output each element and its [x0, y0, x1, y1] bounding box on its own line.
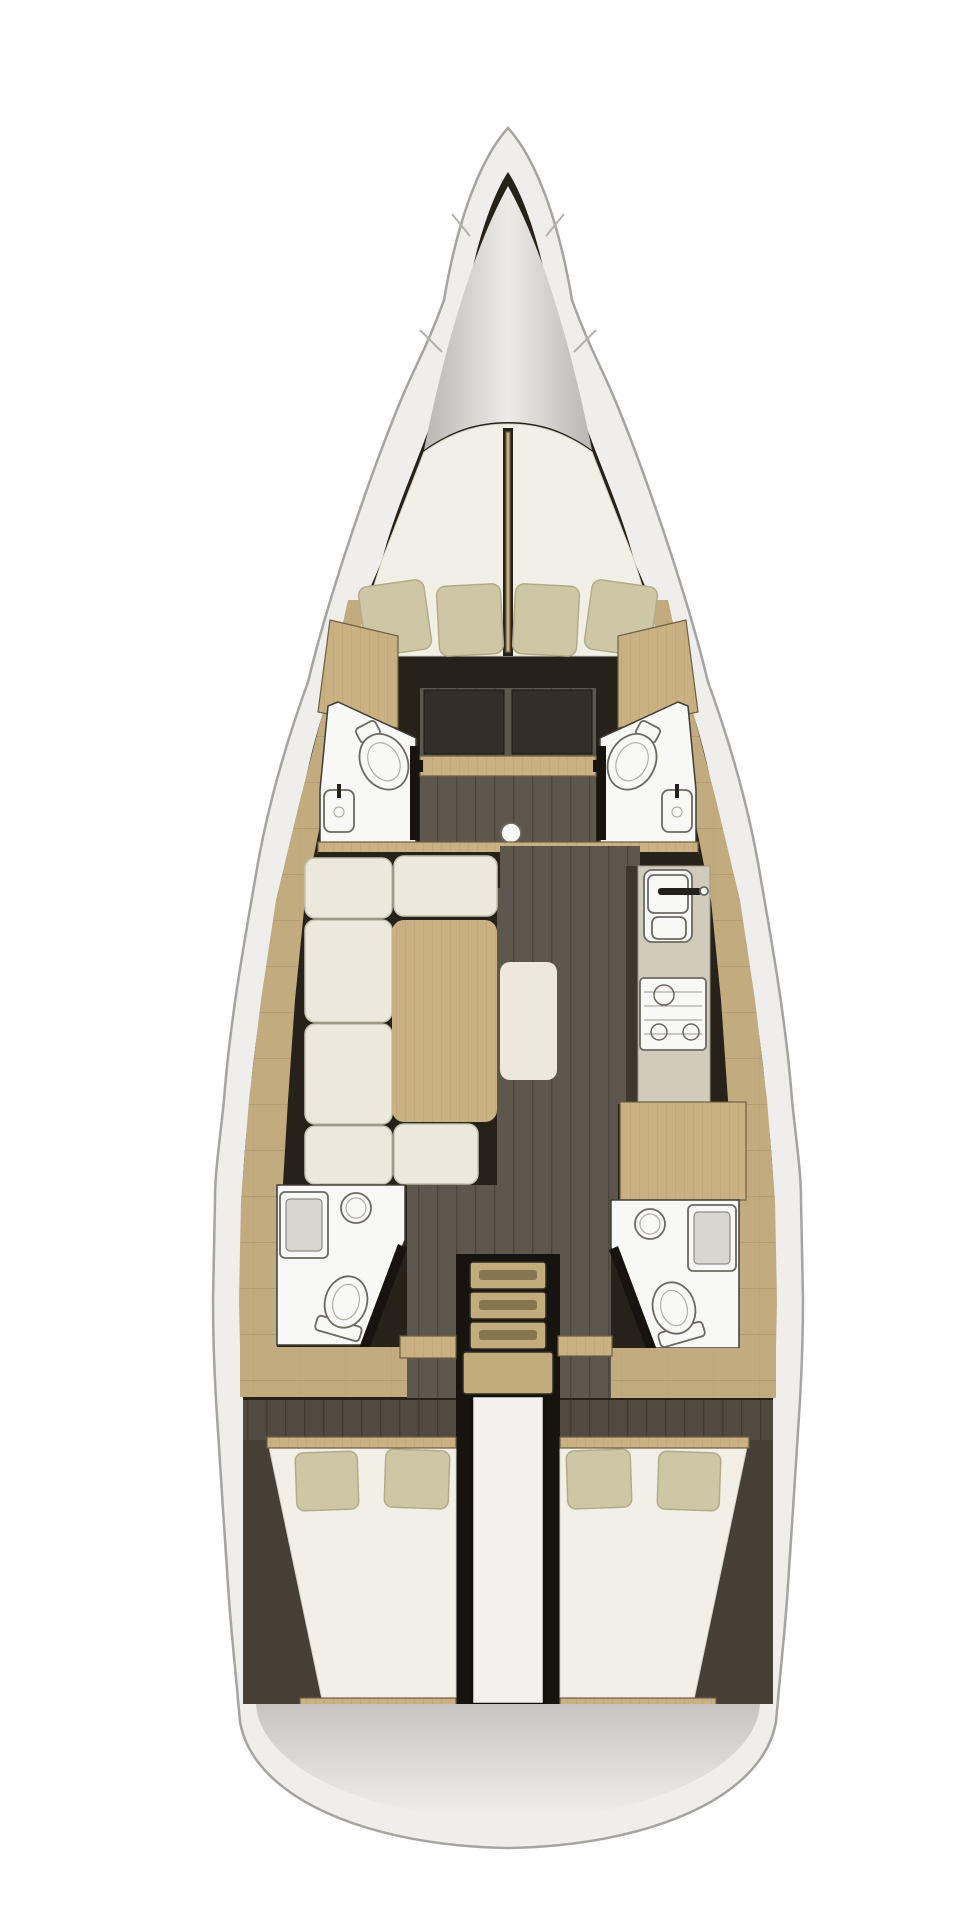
aft-cabin-starboard-floor: [560, 1400, 773, 1440]
aft-port-pillow-1: [295, 1451, 359, 1511]
step-3-tread-slot: [479, 1330, 537, 1340]
aft-starboard-pillow-1: [566, 1449, 632, 1509]
galley-cabinet-front: [626, 866, 638, 1106]
engine-compartment: [472, 1396, 544, 1704]
galley-sink-basin-2: [652, 917, 686, 939]
aft-cabin-starboard: [560, 1400, 773, 1708]
companionway-step-4: [463, 1352, 553, 1394]
aft-cabin-port: [243, 1400, 456, 1708]
step-2-tread-slot: [479, 1300, 537, 1310]
berth-divider-trim: [506, 432, 510, 652]
galley-stove: [640, 978, 706, 1050]
forward-corridor: [417, 688, 599, 846]
page: [0, 0, 959, 1919]
aft-port-pillow-2: [384, 1449, 450, 1509]
corridor-cross-beam: [420, 756, 596, 776]
galley-faucet: [658, 888, 702, 895]
forward-pillow-3: [512, 583, 580, 656]
aft-shelf-port: [240, 1347, 407, 1397]
salon-table: [392, 920, 497, 1122]
step-1-tread-slot: [479, 1270, 537, 1280]
stove-frame: [640, 978, 706, 1050]
sofa-seat-cushion-bottom: [394, 1124, 478, 1184]
sofa-back-cushion-1: [305, 858, 392, 918]
forward-head-port-door: [410, 746, 419, 840]
aft-cabin-starboard-threshold: [560, 1437, 749, 1448]
sofa-seat-cushion-top: [394, 856, 497, 916]
galley-faucet-knob: [700, 887, 708, 895]
aft-shelf-starboard: [611, 1348, 776, 1398]
sofa-back-cushion-3: [305, 1024, 392, 1124]
forward-cabin-door-port: [424, 690, 504, 754]
aft-head-port-shower-tray: [286, 1199, 322, 1251]
forward-head-starboard-door: [597, 746, 606, 840]
forward-head-port-faucet: [337, 784, 341, 798]
nav-desk: [620, 1102, 746, 1200]
forward-head-starboard-faucet: [675, 784, 679, 798]
engine-wall-port: [456, 1396, 472, 1704]
forward-pillow-2: [436, 583, 504, 656]
aft-starboard-pillow-2: [657, 1451, 721, 1511]
mast-post: [501, 823, 521, 843]
forward-cabin-door-starboard: [512, 690, 592, 754]
aft-head-starboard-shower-tray: [694, 1212, 730, 1264]
salon-passage-floor: [500, 846, 640, 890]
yacht-floor-plan: [0, 0, 959, 1919]
center-bench: [500, 962, 557, 1080]
sofa-back-cushion-2: [305, 920, 392, 1022]
step-flank-starboard: [558, 1336, 612, 1356]
sofa-back-cushion-4: [305, 1126, 392, 1184]
engine-wall-starboard: [544, 1396, 560, 1704]
aft-cabin-port-floor: [243, 1400, 456, 1440]
step-flank-port: [400, 1336, 456, 1358]
aft-cabin-port-threshold: [267, 1437, 456, 1448]
